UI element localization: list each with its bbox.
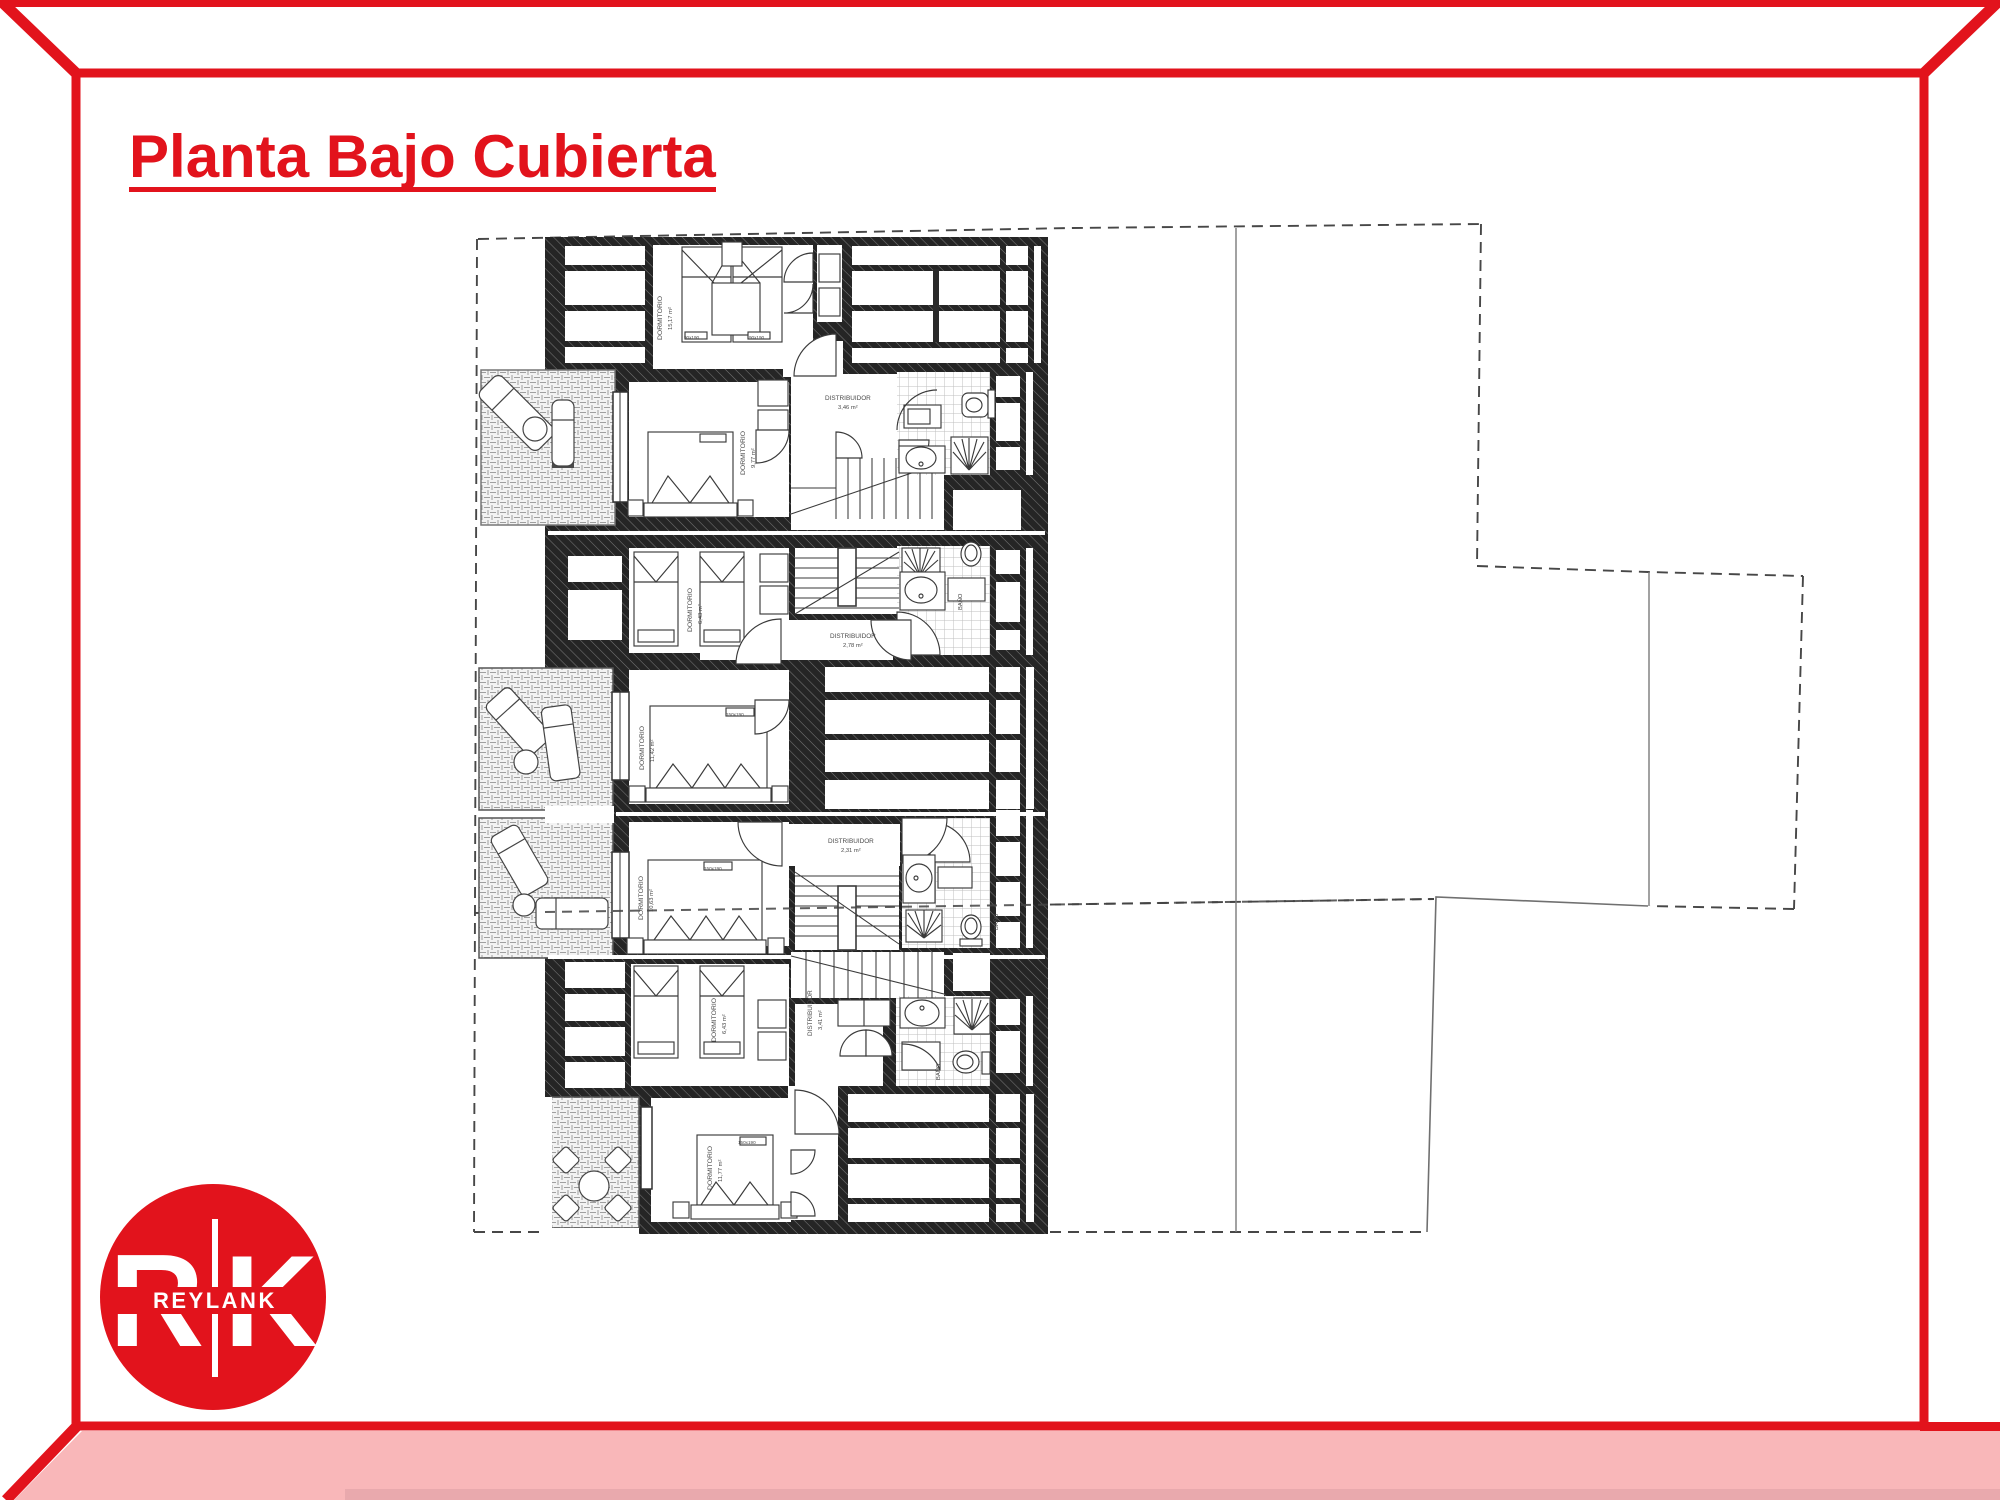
svg-text:DISTRIBUIDOR: DISTRIBUIDOR bbox=[825, 395, 871, 402]
svg-text:15,17 m²: 15,17 m² bbox=[668, 307, 674, 330]
svg-text:BAÑO: BAÑO bbox=[935, 1063, 942, 1080]
svg-text:90x190: 90x190 bbox=[749, 335, 765, 340]
svg-text:150x190: 150x190 bbox=[738, 1140, 756, 1145]
svg-text:DORMITORIO: DORMITORIO bbox=[707, 1146, 714, 1190]
svg-text:10,63 m²: 10,63 m² bbox=[649, 889, 655, 912]
svg-text:DISTRIBUIDOR: DISTRIBUIDOR bbox=[830, 633, 876, 640]
svg-text:3,46 m²: 3,46 m² bbox=[838, 405, 858, 411]
svg-text:90x190: 90x190 bbox=[684, 335, 700, 340]
svg-text:2,31 m²: 2,31 m² bbox=[841, 848, 861, 854]
svg-text:DORMITORIO: DORMITORIO bbox=[711, 998, 718, 1042]
svg-text:DORMITORIO: DORMITORIO bbox=[638, 876, 645, 920]
svg-text:6,43 m²: 6,43 m² bbox=[698, 604, 704, 624]
svg-text:DORMITORIO: DORMITORIO bbox=[639, 726, 646, 770]
svg-text:BAÑO: BAÑO bbox=[993, 913, 1000, 930]
svg-text:6,43 m²: 6,43 m² bbox=[722, 1014, 728, 1034]
svg-text:11,77 m²: 11,77 m² bbox=[718, 1159, 724, 1182]
svg-text:DORMITORIO: DORMITORIO bbox=[657, 296, 664, 340]
svg-text:150x190: 150x190 bbox=[704, 866, 722, 871]
svg-text:2,78 m²: 2,78 m² bbox=[843, 643, 863, 649]
svg-text:11,42 m²: 11,42 m² bbox=[650, 739, 656, 762]
svg-text:DISTRIBUIDOR: DISTRIBUIDOR bbox=[828, 838, 874, 845]
svg-text:3,41 m²: 3,41 m² bbox=[818, 1010, 824, 1030]
svg-text:DISTRIBUIDOR: DISTRIBUIDOR bbox=[807, 990, 814, 1036]
svg-text:REYLANK: REYLANK bbox=[153, 1288, 277, 1313]
svg-text:DORMITORIO: DORMITORIO bbox=[740, 431, 747, 475]
svg-text:150x190: 150x190 bbox=[726, 712, 744, 717]
svg-text:DORMITORIO: DORMITORIO bbox=[687, 588, 694, 632]
svg-text:9,77 m²: 9,77 m² bbox=[751, 448, 757, 468]
svg-text:BAÑO: BAÑO bbox=[957, 593, 964, 610]
